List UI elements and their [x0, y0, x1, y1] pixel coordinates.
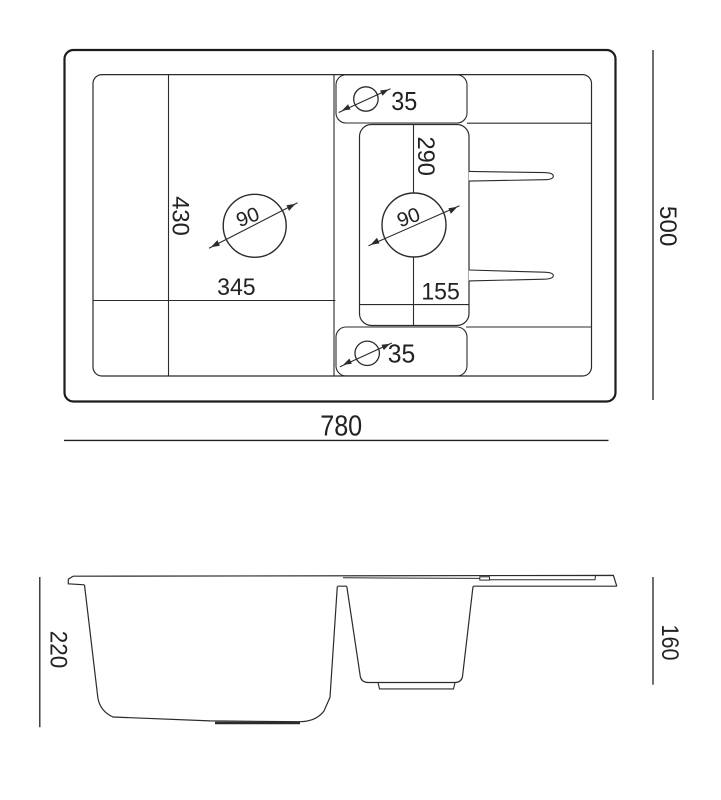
svg-text:160: 160	[656, 625, 683, 661]
svg-text:35: 35	[388, 339, 416, 369]
svg-text:430: 430	[166, 196, 193, 236]
svg-text:500: 500	[654, 206, 681, 247]
svg-text:780: 780	[320, 410, 362, 442]
svg-text:220: 220	[45, 631, 72, 669]
svg-text:290: 290	[412, 136, 439, 176]
svg-text:155: 155	[421, 278, 460, 305]
svg-text:35: 35	[391, 86, 417, 116]
svg-text:345: 345	[217, 274, 256, 301]
